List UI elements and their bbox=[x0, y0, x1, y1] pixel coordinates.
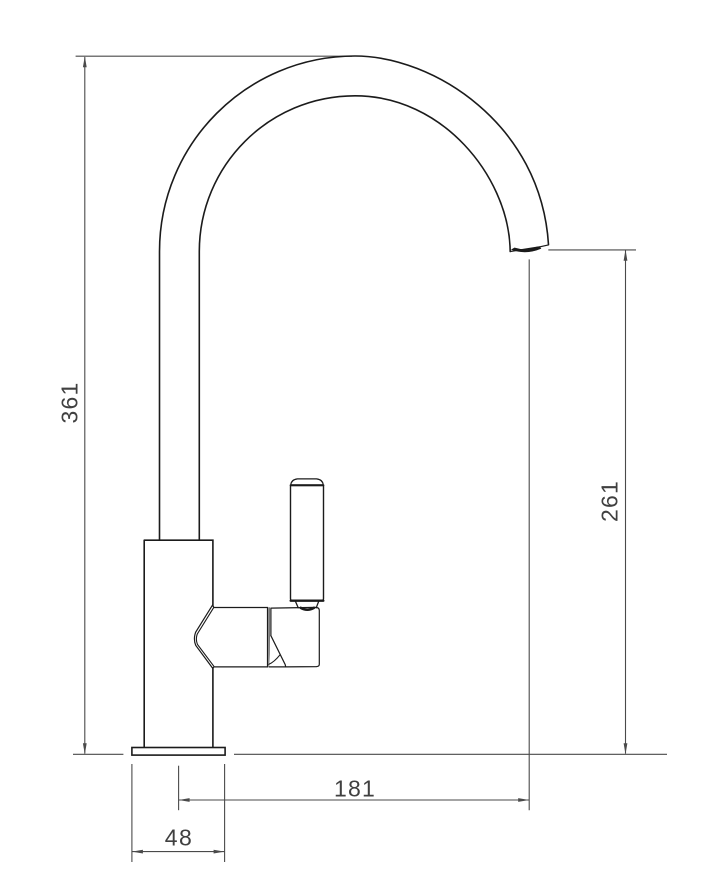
svg-text:181: 181 bbox=[334, 776, 376, 802]
svg-text:261: 261 bbox=[597, 480, 623, 522]
svg-text:48: 48 bbox=[165, 825, 194, 851]
svg-text:361: 361 bbox=[57, 382, 83, 424]
